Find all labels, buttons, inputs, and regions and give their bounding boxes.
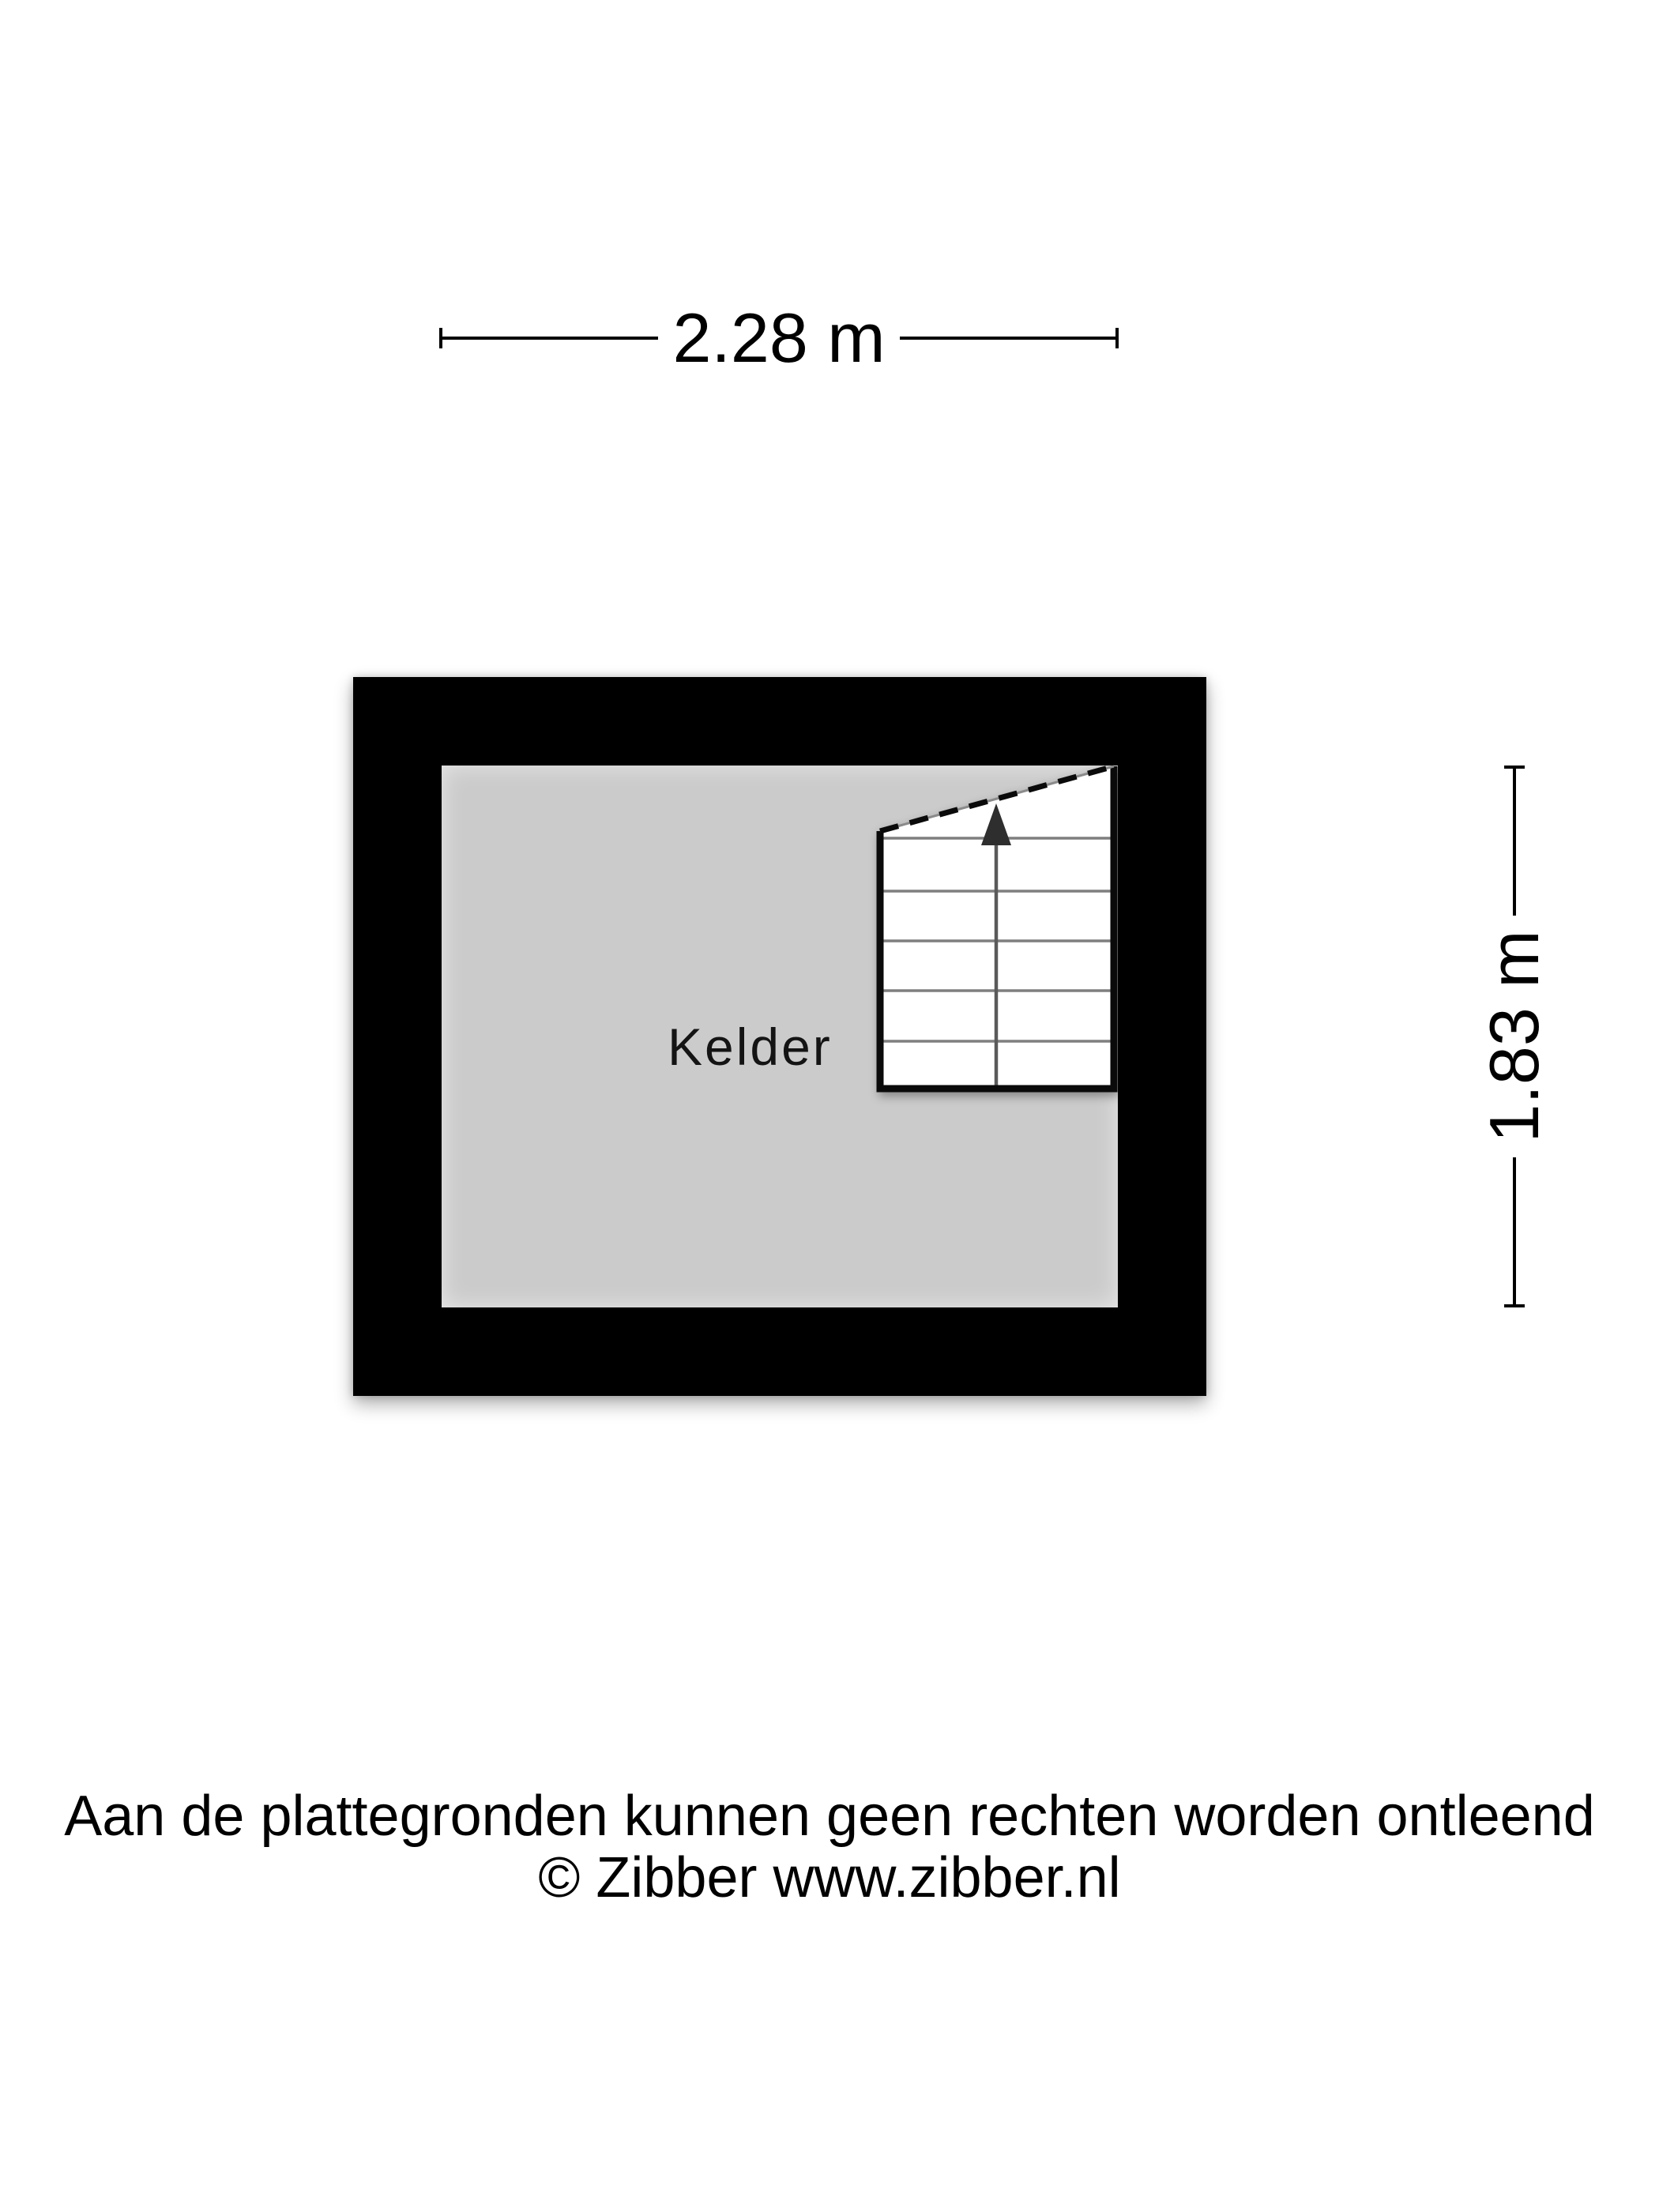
staircase	[877, 763, 1119, 1098]
dimension-height: 1.83 m	[1467, 766, 1562, 1307]
dim-tick-top	[1504, 766, 1525, 769]
dim-line-segment	[442, 337, 658, 340]
dim-tick-bottom	[1504, 1304, 1525, 1307]
disclaimer-text: Aan de plattegronden kunnen geen rechten…	[0, 1785, 1659, 1847]
dimension-width-label: 2.28 m	[658, 303, 899, 373]
dim-line-segment	[1513, 1157, 1516, 1304]
dim-tick-right	[1115, 328, 1119, 348]
dim-line-segment	[1513, 769, 1516, 916]
copyright-text: © Zibber www.zibber.nl	[0, 1847, 1659, 1909]
room-label: Kelder	[668, 1021, 833, 1073]
dim-line-segment	[900, 337, 1115, 340]
dimension-height-label: 1.83 m	[1480, 916, 1549, 1157]
dimension-width: 2.28 m	[439, 291, 1119, 386]
footer: Aan de plattegronden kunnen geen rechten…	[0, 1785, 1659, 1909]
